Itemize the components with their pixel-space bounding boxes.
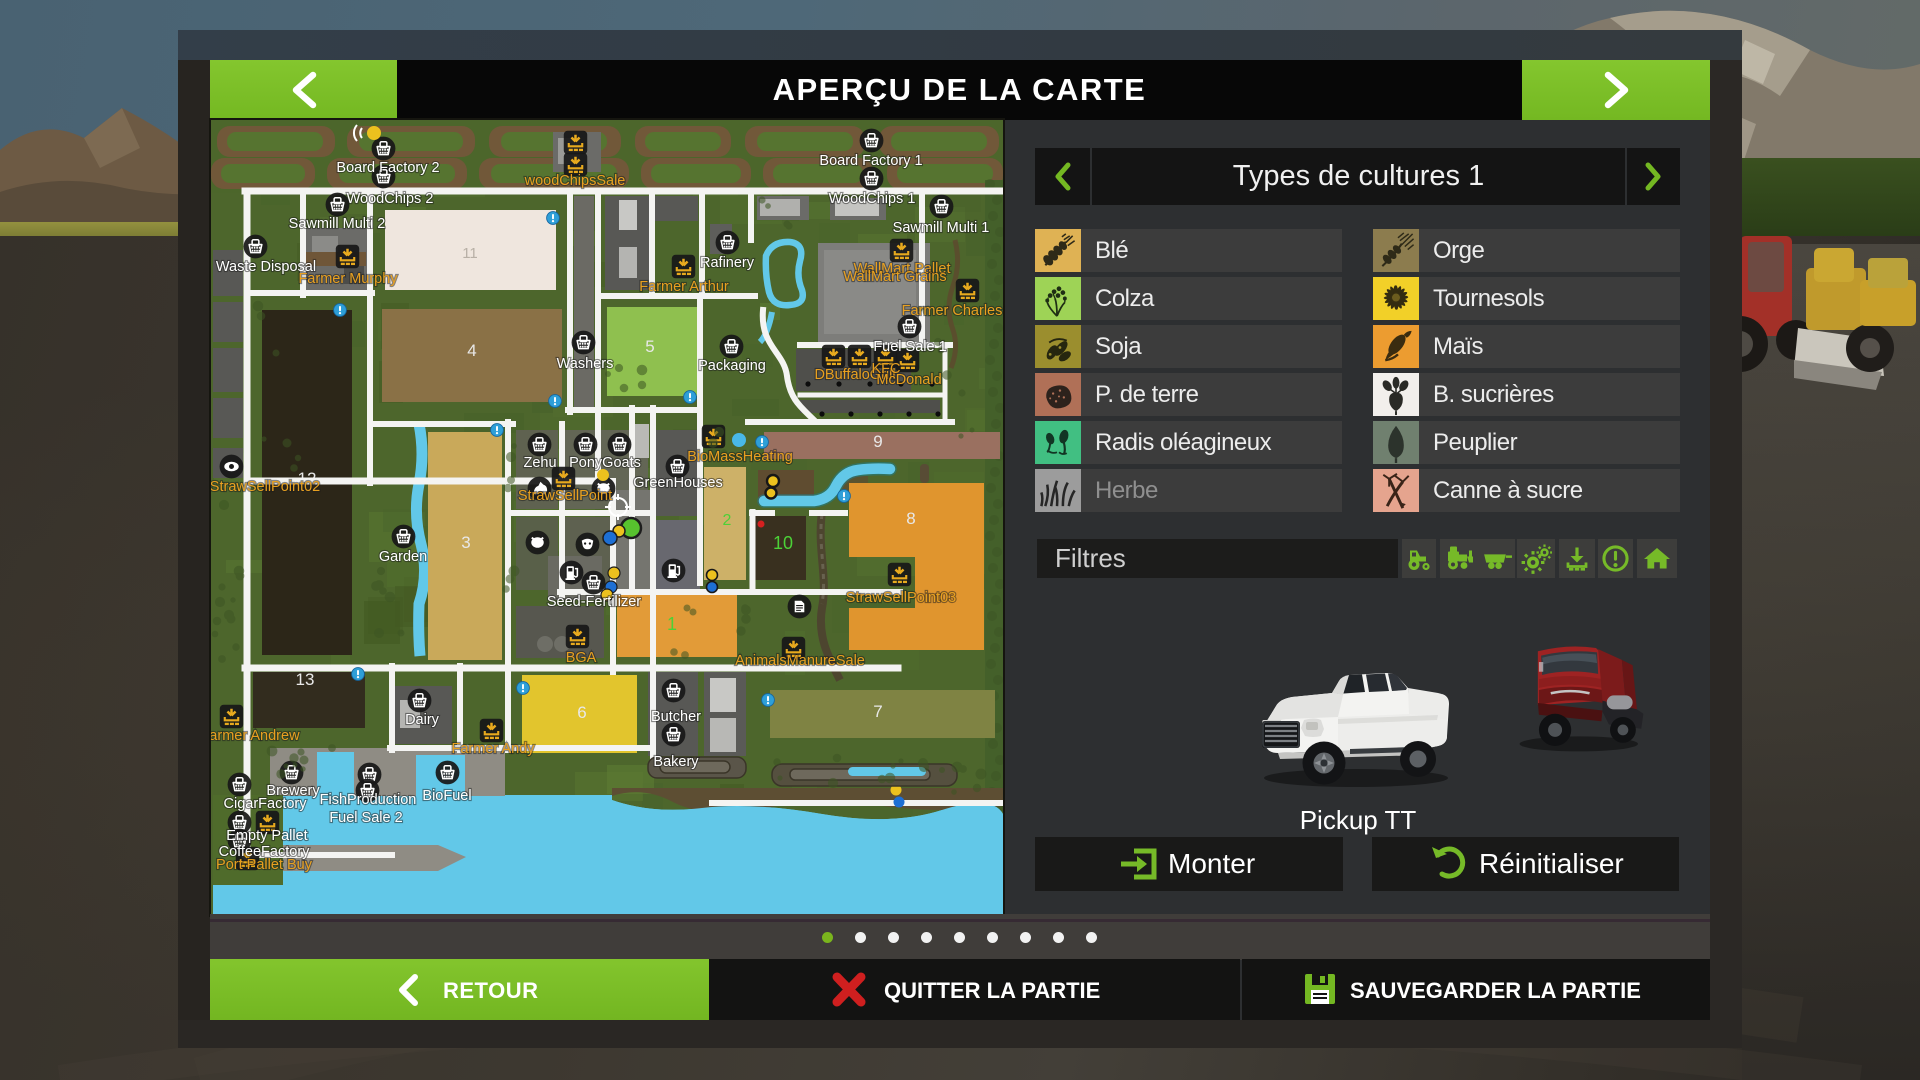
svg-text:1: 1 (667, 614, 677, 634)
svg-text:10: 10 (773, 533, 793, 553)
svg-text:Zehu: Zehu (523, 455, 556, 471)
svg-text:11: 11 (462, 245, 478, 262)
svg-text:Farmer Charles: Farmer Charles (902, 303, 1003, 319)
svg-text:8: 8 (906, 509, 915, 528)
svg-text:Washers: Washers (557, 356, 614, 372)
svg-text:PonyGoats: PonyGoats (569, 455, 641, 471)
svg-text:Fuel Sale 1: Fuel Sale 1 (873, 339, 946, 355)
svg-text:Sawmill Multi 1: Sawmill Multi 1 (893, 220, 990, 236)
svg-text:StrawSellPoint: StrawSellPoint (518, 488, 612, 504)
svg-text:Réinitialiser: Réinitialiser (1479, 848, 1624, 879)
svg-text:5: 5 (645, 337, 654, 356)
svg-text:Dairy: Dairy (405, 712, 440, 728)
svg-text:WoodChips 2: WoodChips 2 (347, 191, 434, 207)
svg-text:3: 3 (461, 533, 470, 552)
svg-text:Rafinery: Rafinery (700, 255, 755, 271)
svg-text:13: 13 (296, 670, 315, 689)
svg-text:AnimalsManureSale: AnimalsManureSale (735, 653, 865, 669)
svg-text:Sawmill Multi 2: Sawmill Multi 2 (289, 216, 386, 232)
svg-text:WallMart Grains: WallMart Grains (843, 269, 946, 285)
svg-text:SAUVEGARDER LA PARTIE: SAUVEGARDER LA PARTIE (1350, 978, 1641, 1003)
svg-text:GreenHouses: GreenHouses (633, 475, 722, 491)
svg-text:Board Factory 2: Board Factory 2 (336, 160, 439, 176)
svg-text:McDonald: McDonald (876, 372, 941, 388)
svg-text:BGA: BGA (566, 650, 597, 666)
svg-text:Farmer Murphy: Farmer Murphy (298, 271, 398, 287)
svg-text:Garden: Garden (379, 549, 427, 565)
svg-text:4: 4 (467, 341, 476, 360)
svg-text:QUITTER LA PARTIE: QUITTER LA PARTIE (884, 978, 1100, 1003)
svg-text:RETOUR: RETOUR (443, 978, 539, 1003)
svg-text:Port Pallet Buy: Port Pallet Buy (216, 857, 313, 873)
svg-text:Farmer Arthur: Farmer Arthur (639, 279, 729, 295)
svg-text:Bakery: Bakery (653, 754, 699, 770)
svg-text:CigarFactory: CigarFactory (224, 796, 308, 812)
svg-text:BioFuel: BioFuel (422, 788, 471, 804)
svg-text:9: 9 (873, 432, 882, 451)
svg-text:Monter: Monter (1168, 848, 1255, 879)
svg-text:6: 6 (577, 703, 586, 722)
svg-text:Packaging: Packaging (698, 358, 766, 374)
svg-text:7: 7 (873, 702, 882, 721)
svg-text:Butcher: Butcher (651, 709, 701, 725)
svg-text:Board Factory 1: Board Factory 1 (819, 153, 922, 169)
svg-text:Farmer Andy: Farmer Andy (452, 741, 536, 757)
svg-text:Seed-Fertilizer: Seed-Fertilizer (547, 594, 641, 610)
svg-text:StrawSellPoint02: StrawSellPoint02 (211, 479, 320, 495)
svg-text:WoodChips 1: WoodChips 1 (829, 191, 916, 207)
svg-text:2: 2 (723, 512, 732, 529)
svg-text:Farmer Andrew: Farmer Andrew (211, 728, 300, 744)
svg-text:Fuel Sale 2: Fuel Sale 2 (329, 810, 402, 826)
svg-text:StrawSellPoint03: StrawSellPoint03 (846, 590, 956, 606)
svg-text:woodChipsSale: woodChipsSale (524, 173, 626, 189)
svg-text:BioMassHeating: BioMassHeating (687, 449, 793, 465)
svg-text:Empty Pallet: Empty Pallet (226, 828, 307, 844)
svg-text:FishProduction: FishProduction (320, 792, 417, 808)
